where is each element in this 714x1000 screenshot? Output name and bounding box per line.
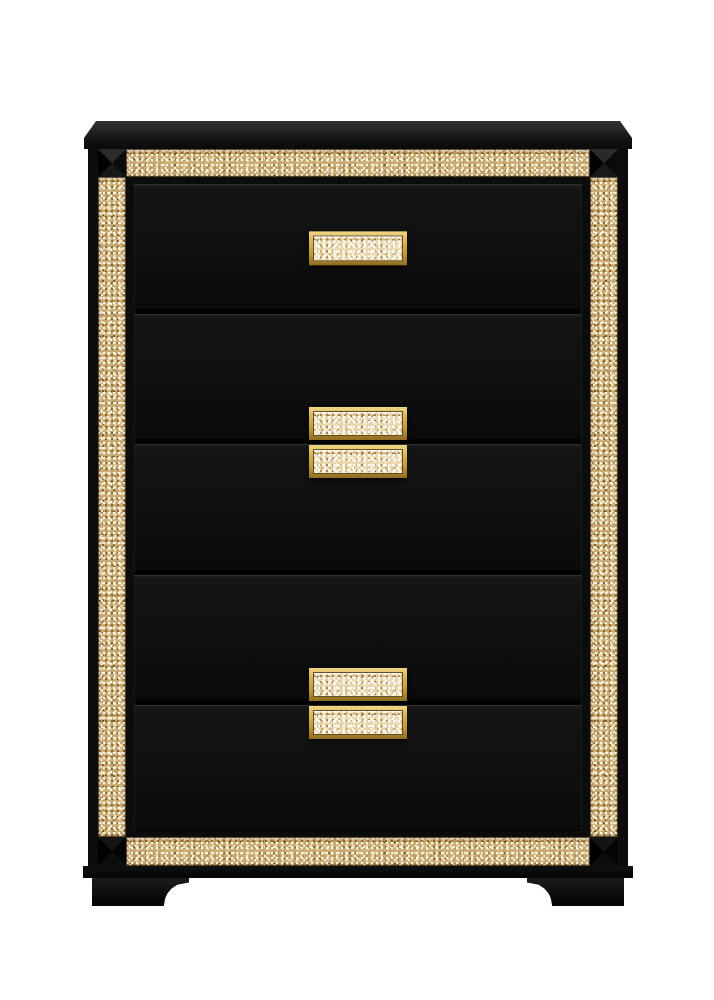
glitter-trim-band-top: [126, 149, 590, 177]
corner-accent-bottom-right: [590, 837, 618, 866]
handle-glitter-inset: [313, 449, 403, 474]
bracket-foot-left: [92, 878, 189, 906]
glitter-trim-band-bottom: [126, 837, 590, 866]
drawer-1-glitter-handle: [309, 231, 407, 265]
handle-glitter-inset: [313, 411, 403, 436]
drawer-4-glitter-handle: [309, 668, 407, 701]
corner-accent-bottom-left: [98, 837, 126, 866]
chest-front-face: [88, 149, 628, 866]
drawer-2: [134, 314, 582, 440]
drawer-4: [134, 575, 582, 701]
handle-glitter-inset: [313, 672, 403, 697]
handle-glitter-inset: [313, 235, 403, 261]
corner-accent-top-left: [98, 149, 126, 177]
drawer-3-glitter-handle: [309, 445, 407, 478]
handle-glitter-inset: [313, 710, 403, 735]
drawer-3: [134, 444, 582, 570]
base-plinth: [83, 866, 633, 878]
bracket-foot-right: [527, 878, 624, 906]
glitter-trim-band-left: [98, 177, 126, 837]
product-photo-chest: [0, 0, 714, 1000]
chest-top-slab: [84, 121, 632, 149]
glitter-trim-band-right: [590, 177, 618, 837]
drawer-stack: [134, 184, 582, 831]
drawer-5-glitter-handle: [309, 706, 407, 739]
drawer-5: [134, 705, 582, 831]
drawer-1: [134, 184, 582, 310]
corner-accent-top-right: [590, 149, 618, 177]
drawer-2-glitter-handle: [309, 407, 407, 440]
